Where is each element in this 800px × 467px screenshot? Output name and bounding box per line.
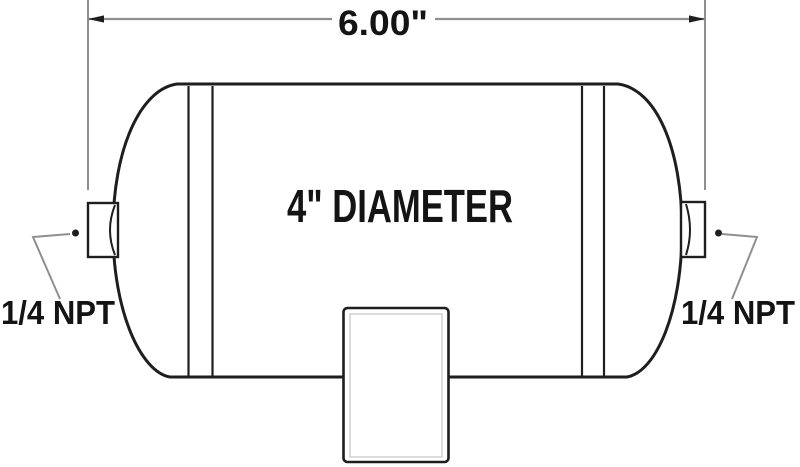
right-leader-line <box>722 234 757 299</box>
bottom-port-boss <box>344 308 449 462</box>
diameter-label: 4" DIAMETER <box>287 180 513 232</box>
right-port-label: 1/4 NPT <box>681 294 795 331</box>
right-leader-dot-icon <box>715 230 722 237</box>
left-port-label: 1/4 NPT <box>1 294 115 331</box>
length-dimension-label: 6.00" <box>338 4 428 43</box>
dimension-arrow-left-icon <box>88 15 104 22</box>
dimension-arrow-right-icon <box>689 15 705 22</box>
left-leader-dot-icon <box>72 230 79 237</box>
right-port-boss <box>681 202 705 257</box>
left-leader-line <box>33 234 70 299</box>
tank-diagram: 6.00" 4" DIAMETER 1/4 NPT 1/4 NPT <box>0 0 800 467</box>
drawing-canvas: 6.00" 4" DIAMETER 1/4 NPT 1/4 NPT <box>0 0 800 467</box>
